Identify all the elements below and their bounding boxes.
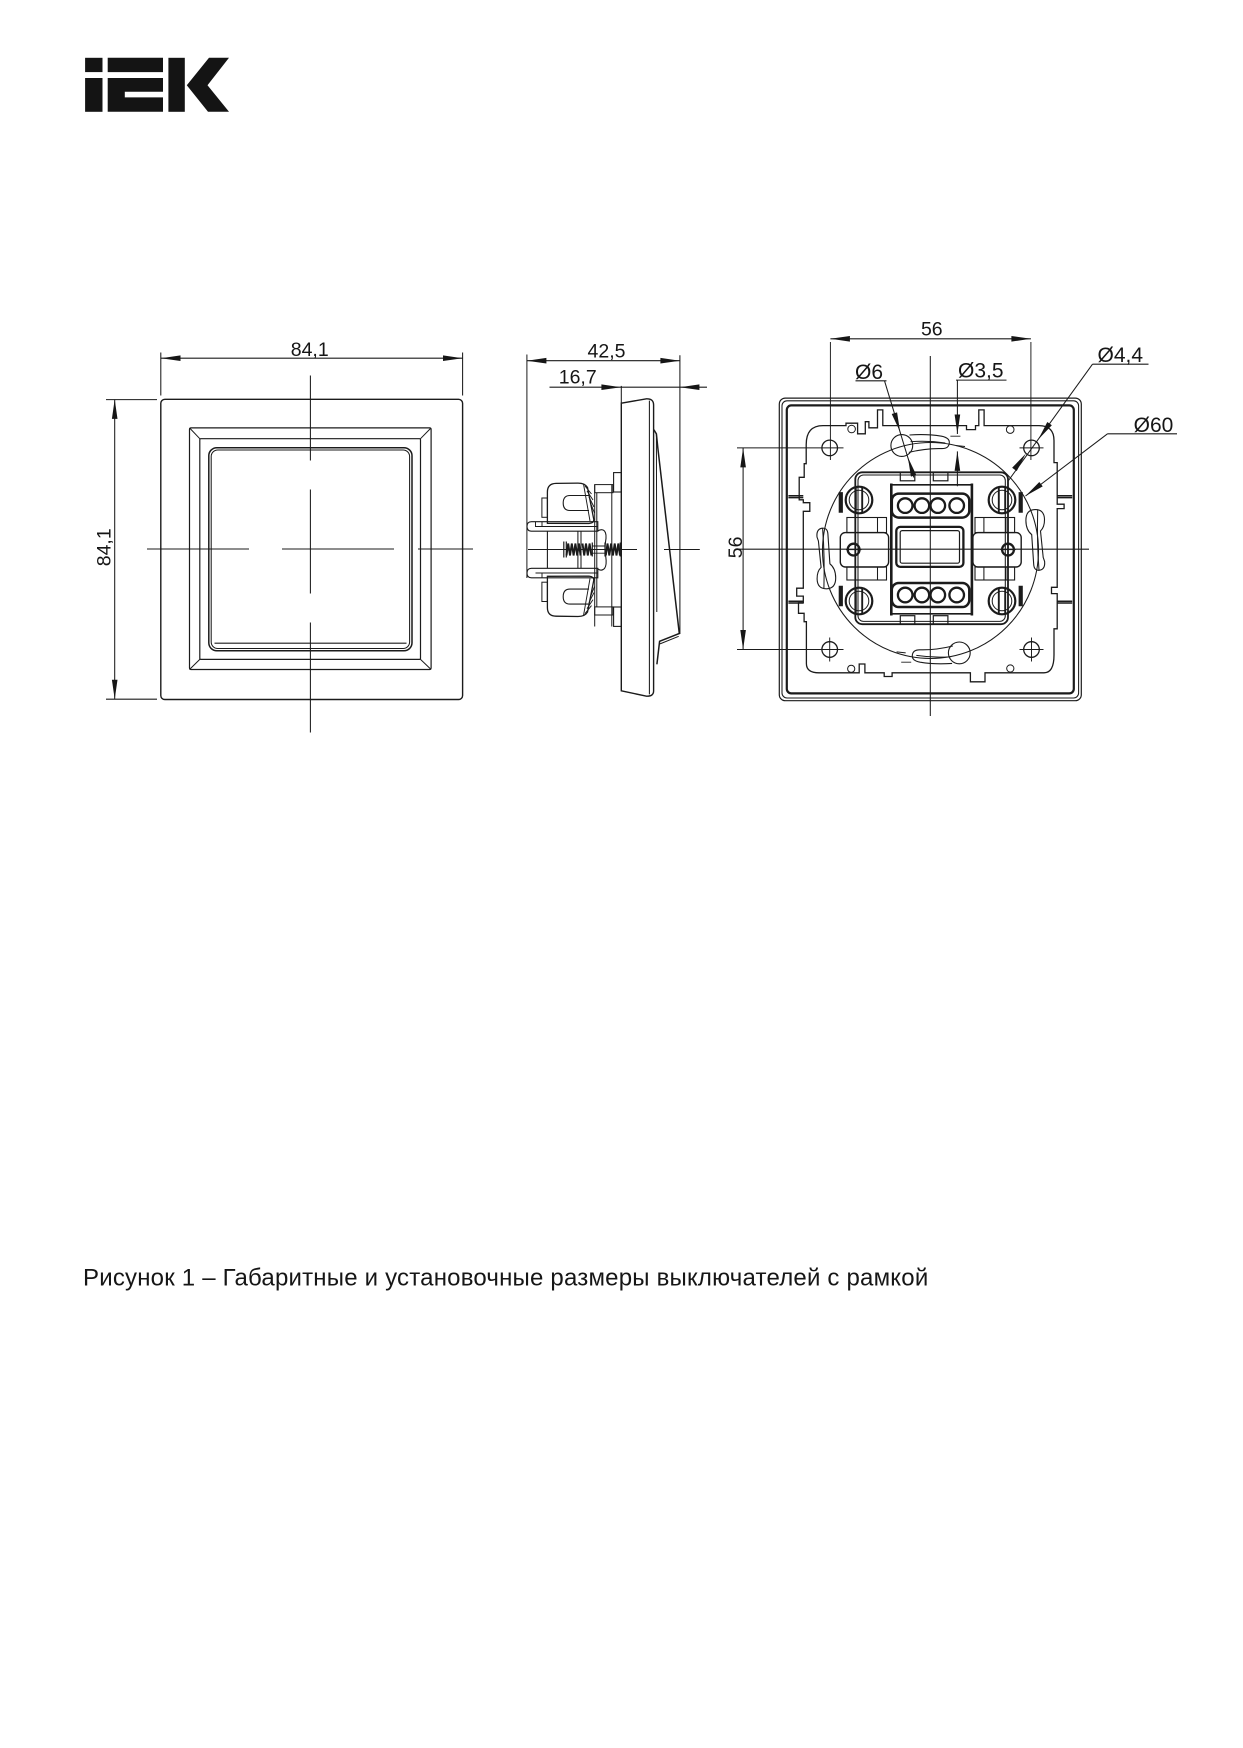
svg-text:42,5: 42,5 — [588, 341, 626, 363]
svg-text:Ø3,5: Ø3,5 — [958, 359, 1004, 382]
svg-text:Рисунок 1 – Габаритные и устан: Рисунок 1 – Габаритные и установочные ра… — [83, 1265, 928, 1292]
svg-text:56: 56 — [921, 319, 943, 341]
svg-text:16,7: 16,7 — [559, 367, 597, 389]
svg-text:84,1: 84,1 — [291, 339, 329, 361]
svg-text:Ø4,4: Ø4,4 — [1098, 344, 1144, 367]
svg-text:56: 56 — [725, 537, 747, 559]
svg-text:84,1: 84,1 — [94, 528, 116, 566]
